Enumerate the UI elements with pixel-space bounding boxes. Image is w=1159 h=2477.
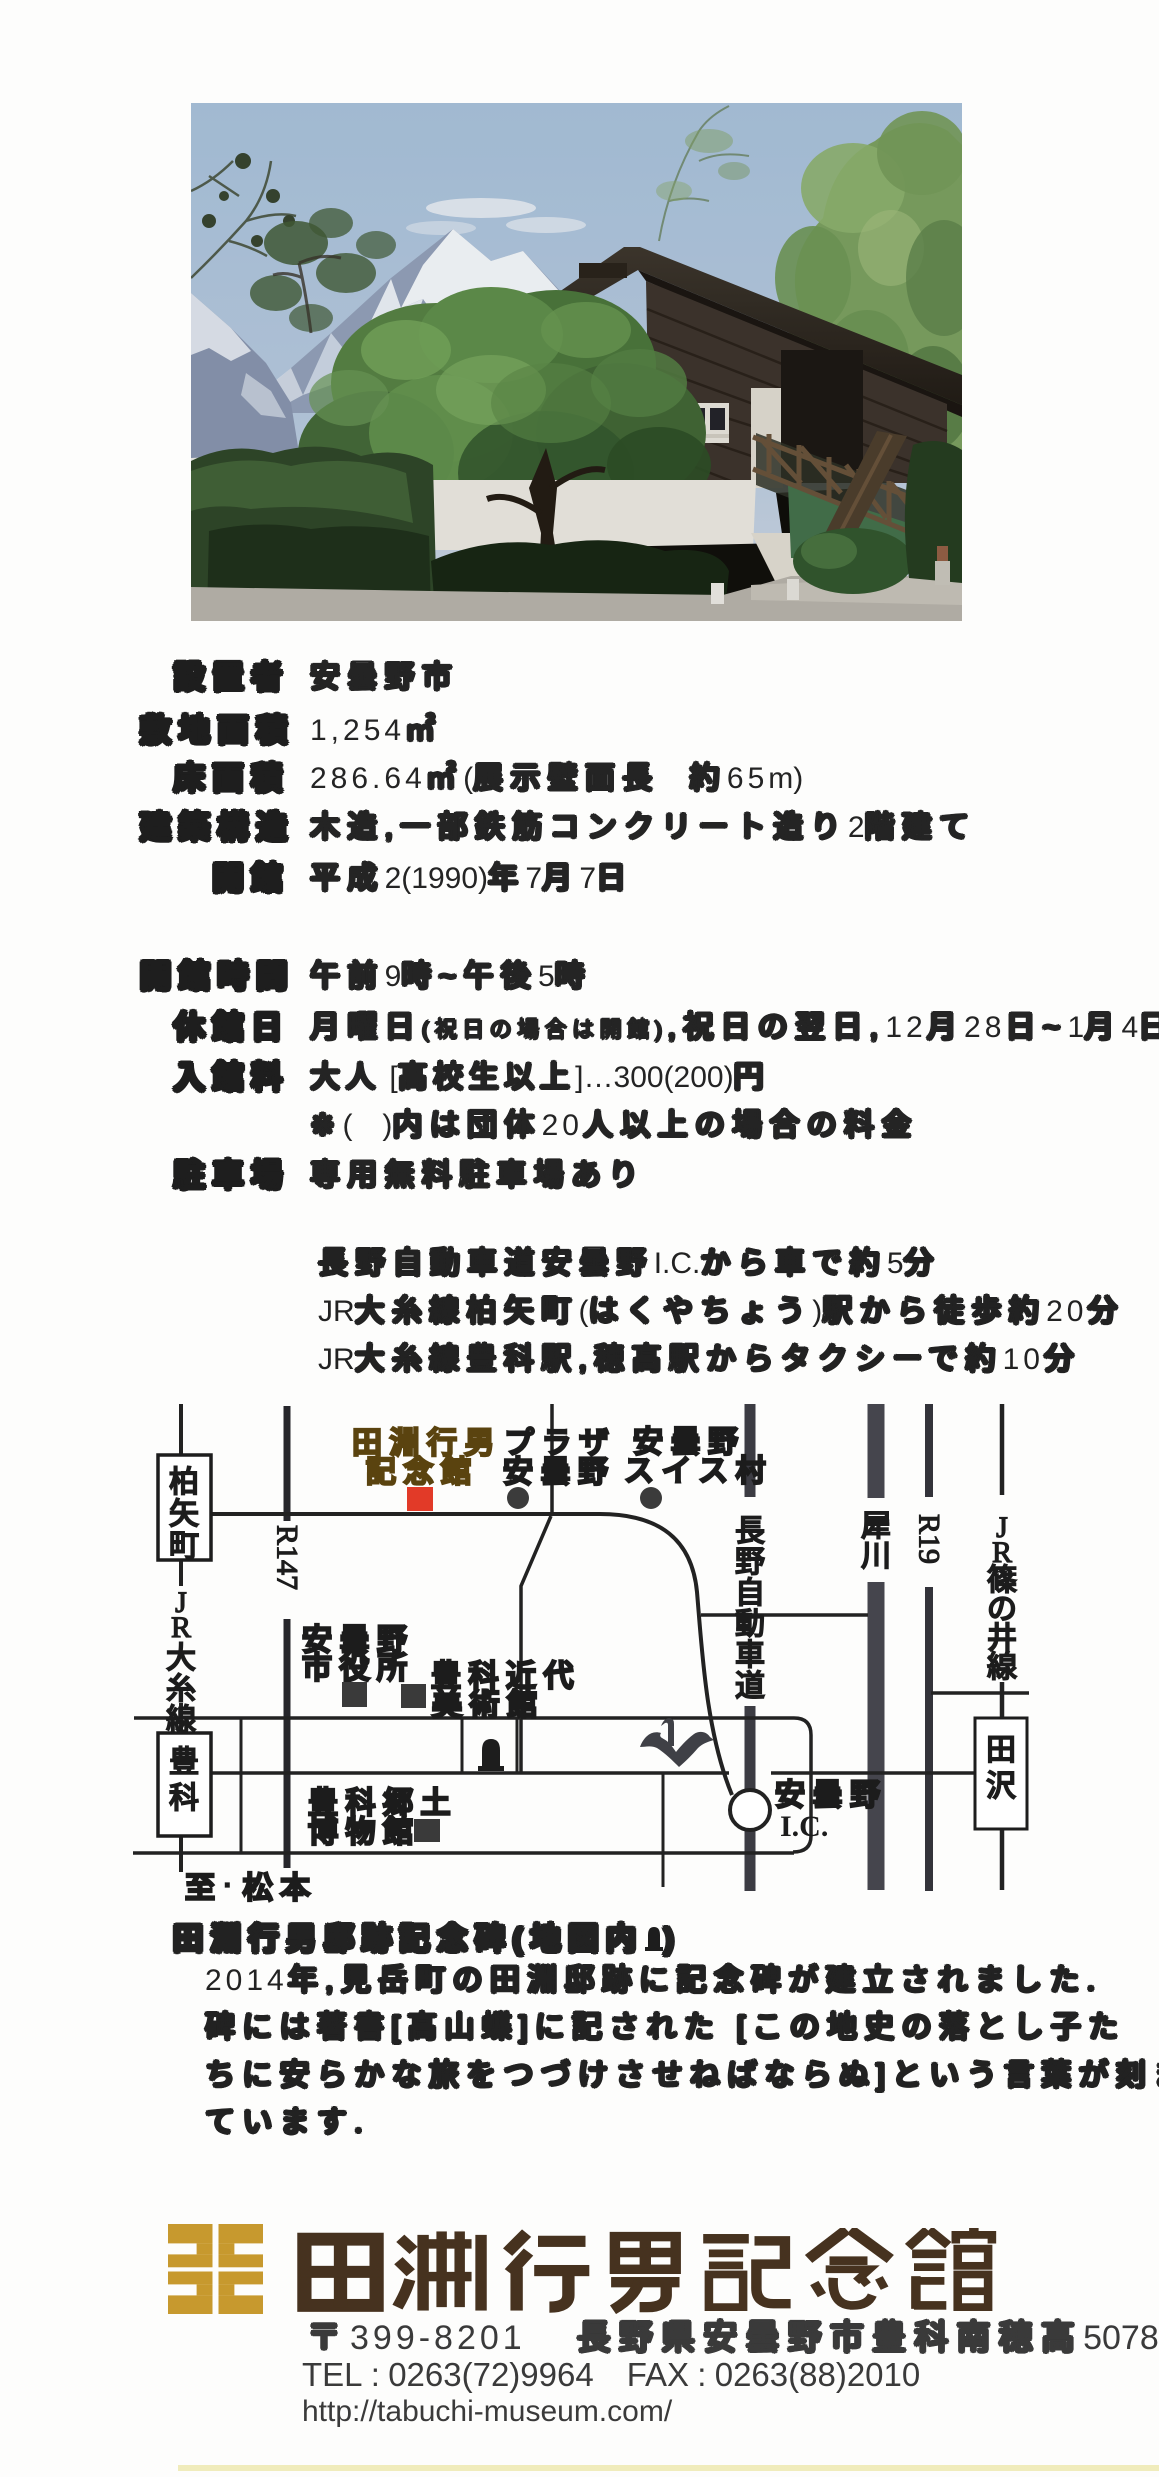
svg-text:篠の井線: 篠の井線 — [987, 1564, 1017, 1684]
svg-text:安曇野: 安曇野 — [503, 1456, 616, 1489]
svg-text:記念館: 記念館 — [366, 1456, 479, 1489]
svg-text:大糸線: 大糸線 — [166, 1642, 196, 1737]
svg-text:市役所: 市役所 — [302, 1652, 415, 1685]
svg-text:至·松本: 至·松本 — [185, 1872, 318, 1905]
svg-text:柏矢町: 柏矢町 — [169, 1466, 199, 1563]
svg-text:犀川: 犀川 — [861, 1510, 891, 1573]
svg-text:R147: R147 — [271, 1525, 304, 1590]
svg-text:長野自動車道: 長野自動車道 — [735, 1515, 765, 1703]
svg-text:I.C.: I.C. — [780, 1810, 828, 1843]
svg-text:博物館: 博物館 — [308, 1816, 421, 1849]
svg-text:R19: R19 — [913, 1514, 946, 1564]
svg-text:スイス村: スイス村 — [624, 1455, 773, 1488]
svg-text:安曇野: 安曇野 — [775, 1779, 888, 1812]
svg-text:美術館: 美術館 — [432, 1689, 545, 1722]
